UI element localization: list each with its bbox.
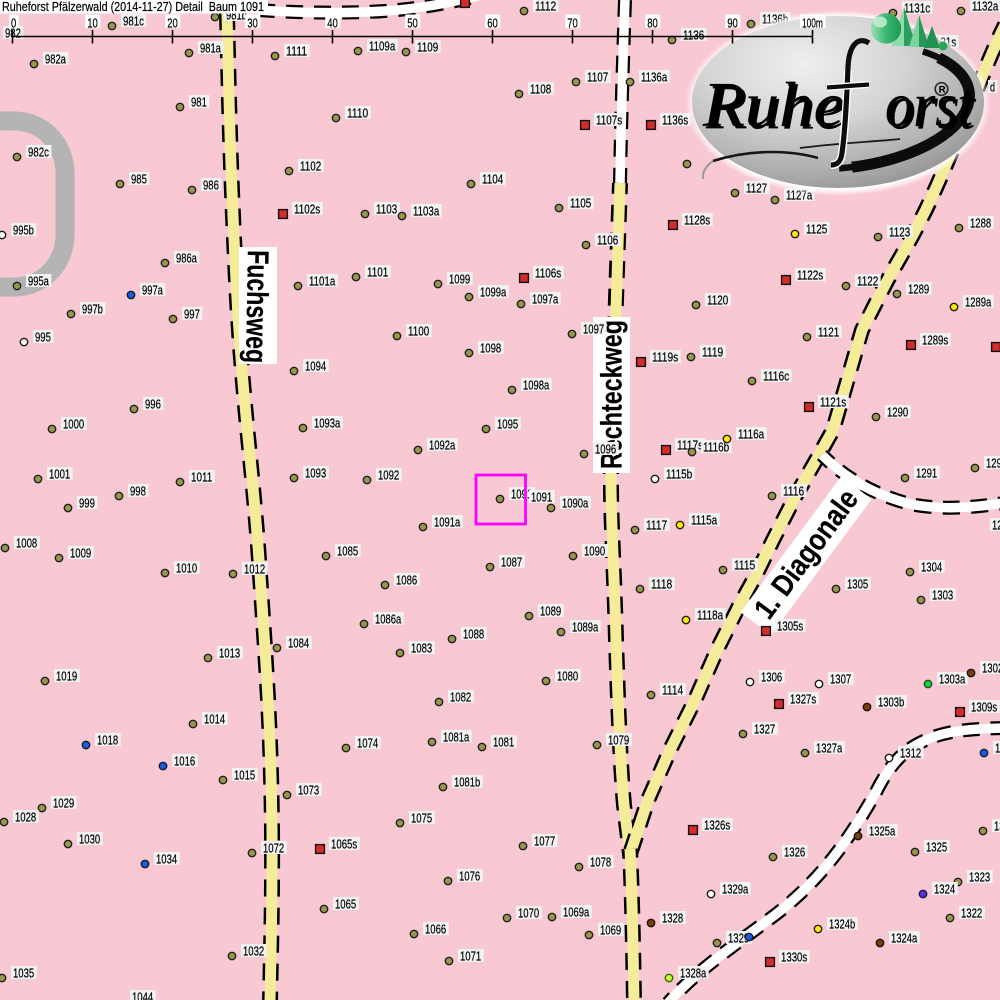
svg-text:1104: 1104 xyxy=(482,172,503,187)
svg-text:1077: 1077 xyxy=(534,834,555,849)
svg-text:1103a: 1103a xyxy=(413,204,440,219)
svg-text:1065s: 1065s xyxy=(331,837,358,852)
svg-text:1069a: 1069a xyxy=(563,905,590,920)
svg-text:1101a: 1101a xyxy=(309,274,336,289)
svg-text:1081a: 1081a xyxy=(443,730,470,745)
svg-text:1099a: 1099a xyxy=(480,285,507,300)
svg-text:1328: 1328 xyxy=(662,911,683,926)
svg-text:1290: 1290 xyxy=(887,405,908,420)
svg-text:1080: 1080 xyxy=(557,669,578,684)
svg-text:40: 40 xyxy=(327,16,338,31)
svg-text:1304: 1304 xyxy=(921,560,942,575)
svg-text:1081b: 1081b xyxy=(454,775,480,790)
svg-text:1034: 1034 xyxy=(156,852,177,867)
svg-text:1305s: 1305s xyxy=(777,619,804,634)
svg-text:1091: 1091 xyxy=(531,490,552,505)
svg-text:1087: 1087 xyxy=(501,555,522,570)
svg-text:1098: 1098 xyxy=(480,341,501,356)
svg-text:1090a: 1090a xyxy=(562,496,589,511)
svg-text:1102s: 1102s xyxy=(294,202,321,217)
svg-text:1112: 1112 xyxy=(535,0,556,14)
svg-text:1302: 1302 xyxy=(982,661,1000,676)
svg-text:1323: 1323 xyxy=(969,870,990,885)
svg-text:60: 60 xyxy=(487,16,498,31)
svg-text:995a: 995a xyxy=(28,274,49,289)
svg-text:1327s: 1327s xyxy=(790,692,817,707)
svg-text:1128s: 1128s xyxy=(684,213,711,228)
svg-text:1289: 1289 xyxy=(908,282,929,297)
svg-text:1069: 1069 xyxy=(600,923,621,938)
svg-text:1330s: 1330s xyxy=(781,950,808,965)
svg-text:1105: 1105 xyxy=(570,196,591,211)
svg-text:1085: 1085 xyxy=(337,544,358,559)
svg-text:1089: 1089 xyxy=(540,604,561,619)
svg-text:1303a: 1303a xyxy=(939,672,966,687)
svg-text:1079: 1079 xyxy=(608,733,629,748)
svg-text:1122: 1122 xyxy=(857,274,878,289)
svg-text:1078: 1078 xyxy=(590,855,611,870)
svg-text:1088: 1088 xyxy=(463,627,484,642)
svg-text:1307: 1307 xyxy=(830,672,851,687)
svg-text:1093: 1093 xyxy=(305,466,326,481)
svg-text:999: 999 xyxy=(79,496,95,511)
svg-text:1091a: 1091a xyxy=(434,515,461,530)
svg-text:80: 80 xyxy=(647,16,658,31)
svg-text:1102: 1102 xyxy=(300,159,321,174)
svg-text:1070: 1070 xyxy=(518,906,539,921)
svg-text:1106: 1106 xyxy=(597,233,618,248)
svg-text:R: R xyxy=(939,85,946,96)
svg-text:1084: 1084 xyxy=(288,636,309,651)
svg-text:1097a: 1097a xyxy=(532,292,559,307)
svg-text:981: 981 xyxy=(191,95,207,110)
svg-text:1082: 1082 xyxy=(450,690,471,705)
svg-text:1076: 1076 xyxy=(459,869,480,884)
svg-text:1115a: 1115a xyxy=(691,513,718,528)
svg-text:1121s: 1121s xyxy=(820,395,847,410)
svg-text:1321: 1321 xyxy=(994,819,1000,834)
svg-text:1329a: 1329a xyxy=(722,882,749,897)
svg-text:1109: 1109 xyxy=(417,40,438,55)
svg-text:1122s: 1122s xyxy=(797,268,824,283)
svg-text:1293: 1293 xyxy=(992,518,1000,533)
svg-text:1018: 1018 xyxy=(97,733,118,748)
svg-text:1010: 1010 xyxy=(176,561,197,576)
svg-text:1116a: 1116a xyxy=(738,427,765,442)
svg-text:1014: 1014 xyxy=(204,712,225,727)
svg-text:1328a: 1328a xyxy=(680,966,707,981)
svg-text:1119s: 1119s xyxy=(652,350,679,365)
svg-text:1029: 1029 xyxy=(53,796,74,811)
svg-text:1030: 1030 xyxy=(79,832,100,847)
svg-text:1103: 1103 xyxy=(376,202,397,217)
svg-text:1136s: 1136s xyxy=(662,113,689,128)
svg-text:1289s: 1289s xyxy=(922,333,949,348)
svg-text:1120: 1120 xyxy=(707,293,728,308)
svg-text:998: 998 xyxy=(130,484,146,499)
svg-text:1324a: 1324a xyxy=(891,931,918,946)
svg-text:1305: 1305 xyxy=(847,577,868,592)
svg-text:1028: 1028 xyxy=(15,810,36,825)
svg-text:985: 985 xyxy=(131,172,147,187)
svg-text:1095: 1095 xyxy=(497,417,518,432)
svg-text:1326: 1326 xyxy=(784,845,805,860)
svg-text:1115b: 1115b xyxy=(666,467,692,482)
svg-text:1086a: 1086a xyxy=(375,612,402,627)
svg-text:981c: 981c xyxy=(123,14,144,29)
svg-text:1116c: 1116c xyxy=(763,369,790,384)
svg-text:1132a: 1132a xyxy=(972,0,999,14)
svg-text:1035: 1035 xyxy=(13,966,34,981)
svg-text:100m: 100m xyxy=(802,16,823,31)
svg-text:1107s: 1107s xyxy=(596,113,623,128)
svg-text:1312: 1312 xyxy=(900,746,921,761)
svg-text:1136a: 1136a xyxy=(641,70,668,85)
svg-text:20: 20 xyxy=(167,16,178,31)
svg-text:1074: 1074 xyxy=(357,736,378,751)
svg-text:1032: 1032 xyxy=(243,944,264,959)
svg-text:1089a: 1089a xyxy=(572,620,599,635)
svg-text:986a: 986a xyxy=(176,251,197,266)
svg-text:orst: orst xyxy=(885,69,975,140)
svg-text:1313: 1313 xyxy=(995,741,1000,756)
svg-text:30: 30 xyxy=(247,16,258,31)
svg-text:1118: 1118 xyxy=(651,577,672,592)
svg-text:1081: 1081 xyxy=(493,735,514,750)
svg-text:982c: 982c xyxy=(28,145,49,160)
svg-text:50: 50 xyxy=(407,16,418,31)
svg-text:1106s: 1106s xyxy=(535,266,562,281)
svg-text:1075: 1075 xyxy=(411,811,432,826)
svg-text:1303b: 1303b xyxy=(878,695,904,710)
svg-text:1322: 1322 xyxy=(961,906,982,921)
svg-text:1108: 1108 xyxy=(530,82,551,97)
svg-text:1327a: 1327a xyxy=(816,741,843,756)
svg-text:1072: 1072 xyxy=(263,841,284,856)
svg-text:995: 995 xyxy=(35,330,51,345)
svg-text:1118a: 1118a xyxy=(697,608,724,623)
svg-text:1324b: 1324b xyxy=(829,917,855,932)
svg-text:997b: 997b xyxy=(82,302,103,317)
svg-text:1098a: 1098a xyxy=(523,378,550,393)
svg-text:1016: 1016 xyxy=(174,754,195,769)
svg-text:1086: 1086 xyxy=(396,573,417,588)
svg-text:1044: 1044 xyxy=(132,990,153,1000)
svg-text:1289a: 1289a xyxy=(965,295,992,310)
svg-text:1303: 1303 xyxy=(932,588,953,603)
svg-text:996: 996 xyxy=(145,397,161,412)
svg-text:1012: 1012 xyxy=(244,562,265,577)
svg-text:997a: 997a xyxy=(142,283,163,298)
svg-text:1306: 1306 xyxy=(761,670,782,685)
svg-text:10: 10 xyxy=(87,16,98,31)
svg-text:1011: 1011 xyxy=(191,470,212,485)
svg-text:1097: 1097 xyxy=(583,322,604,337)
svg-text:1100: 1100 xyxy=(408,324,429,339)
svg-text:1101: 1101 xyxy=(367,265,388,280)
svg-text:995b: 995b xyxy=(13,223,34,238)
svg-text:1109a: 1109a xyxy=(369,39,396,54)
svg-text:1092a: 1092a xyxy=(429,438,456,453)
svg-text:1114: 1114 xyxy=(662,683,683,698)
svg-text:1015: 1015 xyxy=(234,768,255,783)
svg-text:1019: 1019 xyxy=(56,669,77,684)
svg-text:1110: 1110 xyxy=(347,106,368,121)
svg-text:1292: 1292 xyxy=(986,456,1000,471)
svg-text:1117: 1117 xyxy=(646,518,667,533)
svg-text:1116: 1116 xyxy=(783,484,804,499)
svg-text:1065: 1065 xyxy=(335,897,356,912)
svg-text:1001: 1001 xyxy=(49,467,70,482)
svg-text:1325a: 1325a xyxy=(869,824,896,839)
svg-text:1073: 1073 xyxy=(298,783,319,798)
svg-text:1009: 1009 xyxy=(70,546,91,561)
svg-text:1327: 1327 xyxy=(754,722,775,737)
svg-text:1119: 1119 xyxy=(702,345,723,360)
svg-text:982a: 982a xyxy=(45,52,66,67)
svg-text:1288: 1288 xyxy=(970,216,991,231)
svg-text:1121: 1121 xyxy=(818,325,839,340)
svg-text:1013: 1013 xyxy=(219,646,240,661)
svg-text:Ruheforst Pfälzerwald (2014-11: Ruheforst Pfälzerwald (2014-11-27) Detai… xyxy=(2,0,264,14)
svg-text:1093a: 1093a xyxy=(314,416,341,431)
svg-text:90: 90 xyxy=(727,16,738,31)
svg-text:1000: 1000 xyxy=(63,417,84,432)
svg-text:1309s: 1309s xyxy=(971,700,998,715)
svg-text:1324: 1324 xyxy=(934,882,955,897)
svg-text:0: 0 xyxy=(11,16,16,31)
svg-text:1325: 1325 xyxy=(926,840,947,855)
svg-text:1092: 1092 xyxy=(378,468,399,483)
svg-text:1096: 1096 xyxy=(595,442,616,457)
svg-text:1090: 1090 xyxy=(584,544,605,559)
svg-text:1107: 1107 xyxy=(587,70,608,85)
svg-text:1125: 1125 xyxy=(806,222,827,237)
svg-text:1326s: 1326s xyxy=(704,818,731,833)
svg-text:1123: 1123 xyxy=(889,225,910,240)
svg-text:1083: 1083 xyxy=(411,641,432,656)
svg-text:1094: 1094 xyxy=(305,359,326,374)
svg-text:997: 997 xyxy=(184,307,200,322)
svg-text:981a: 981a xyxy=(200,41,221,56)
svg-text:986: 986 xyxy=(203,178,219,193)
svg-text:1008: 1008 xyxy=(16,536,37,551)
svg-text:d: d xyxy=(990,80,995,95)
svg-text:1071: 1071 xyxy=(460,949,481,964)
svg-text:1291: 1291 xyxy=(916,466,937,481)
svg-text:Ruhe: Ruhe xyxy=(702,69,844,140)
svg-text:1066: 1066 xyxy=(425,922,446,937)
svg-text:Fuchsweg: Fuchsweg xyxy=(239,250,274,364)
svg-text:1115: 1115 xyxy=(734,558,755,573)
svg-text:1099: 1099 xyxy=(449,272,470,287)
svg-text:1131c: 1131c xyxy=(904,1,931,16)
svg-text:1136: 1136 xyxy=(683,28,704,43)
svg-text:70: 70 xyxy=(567,16,578,31)
svg-text:1111: 1111 xyxy=(286,44,307,59)
